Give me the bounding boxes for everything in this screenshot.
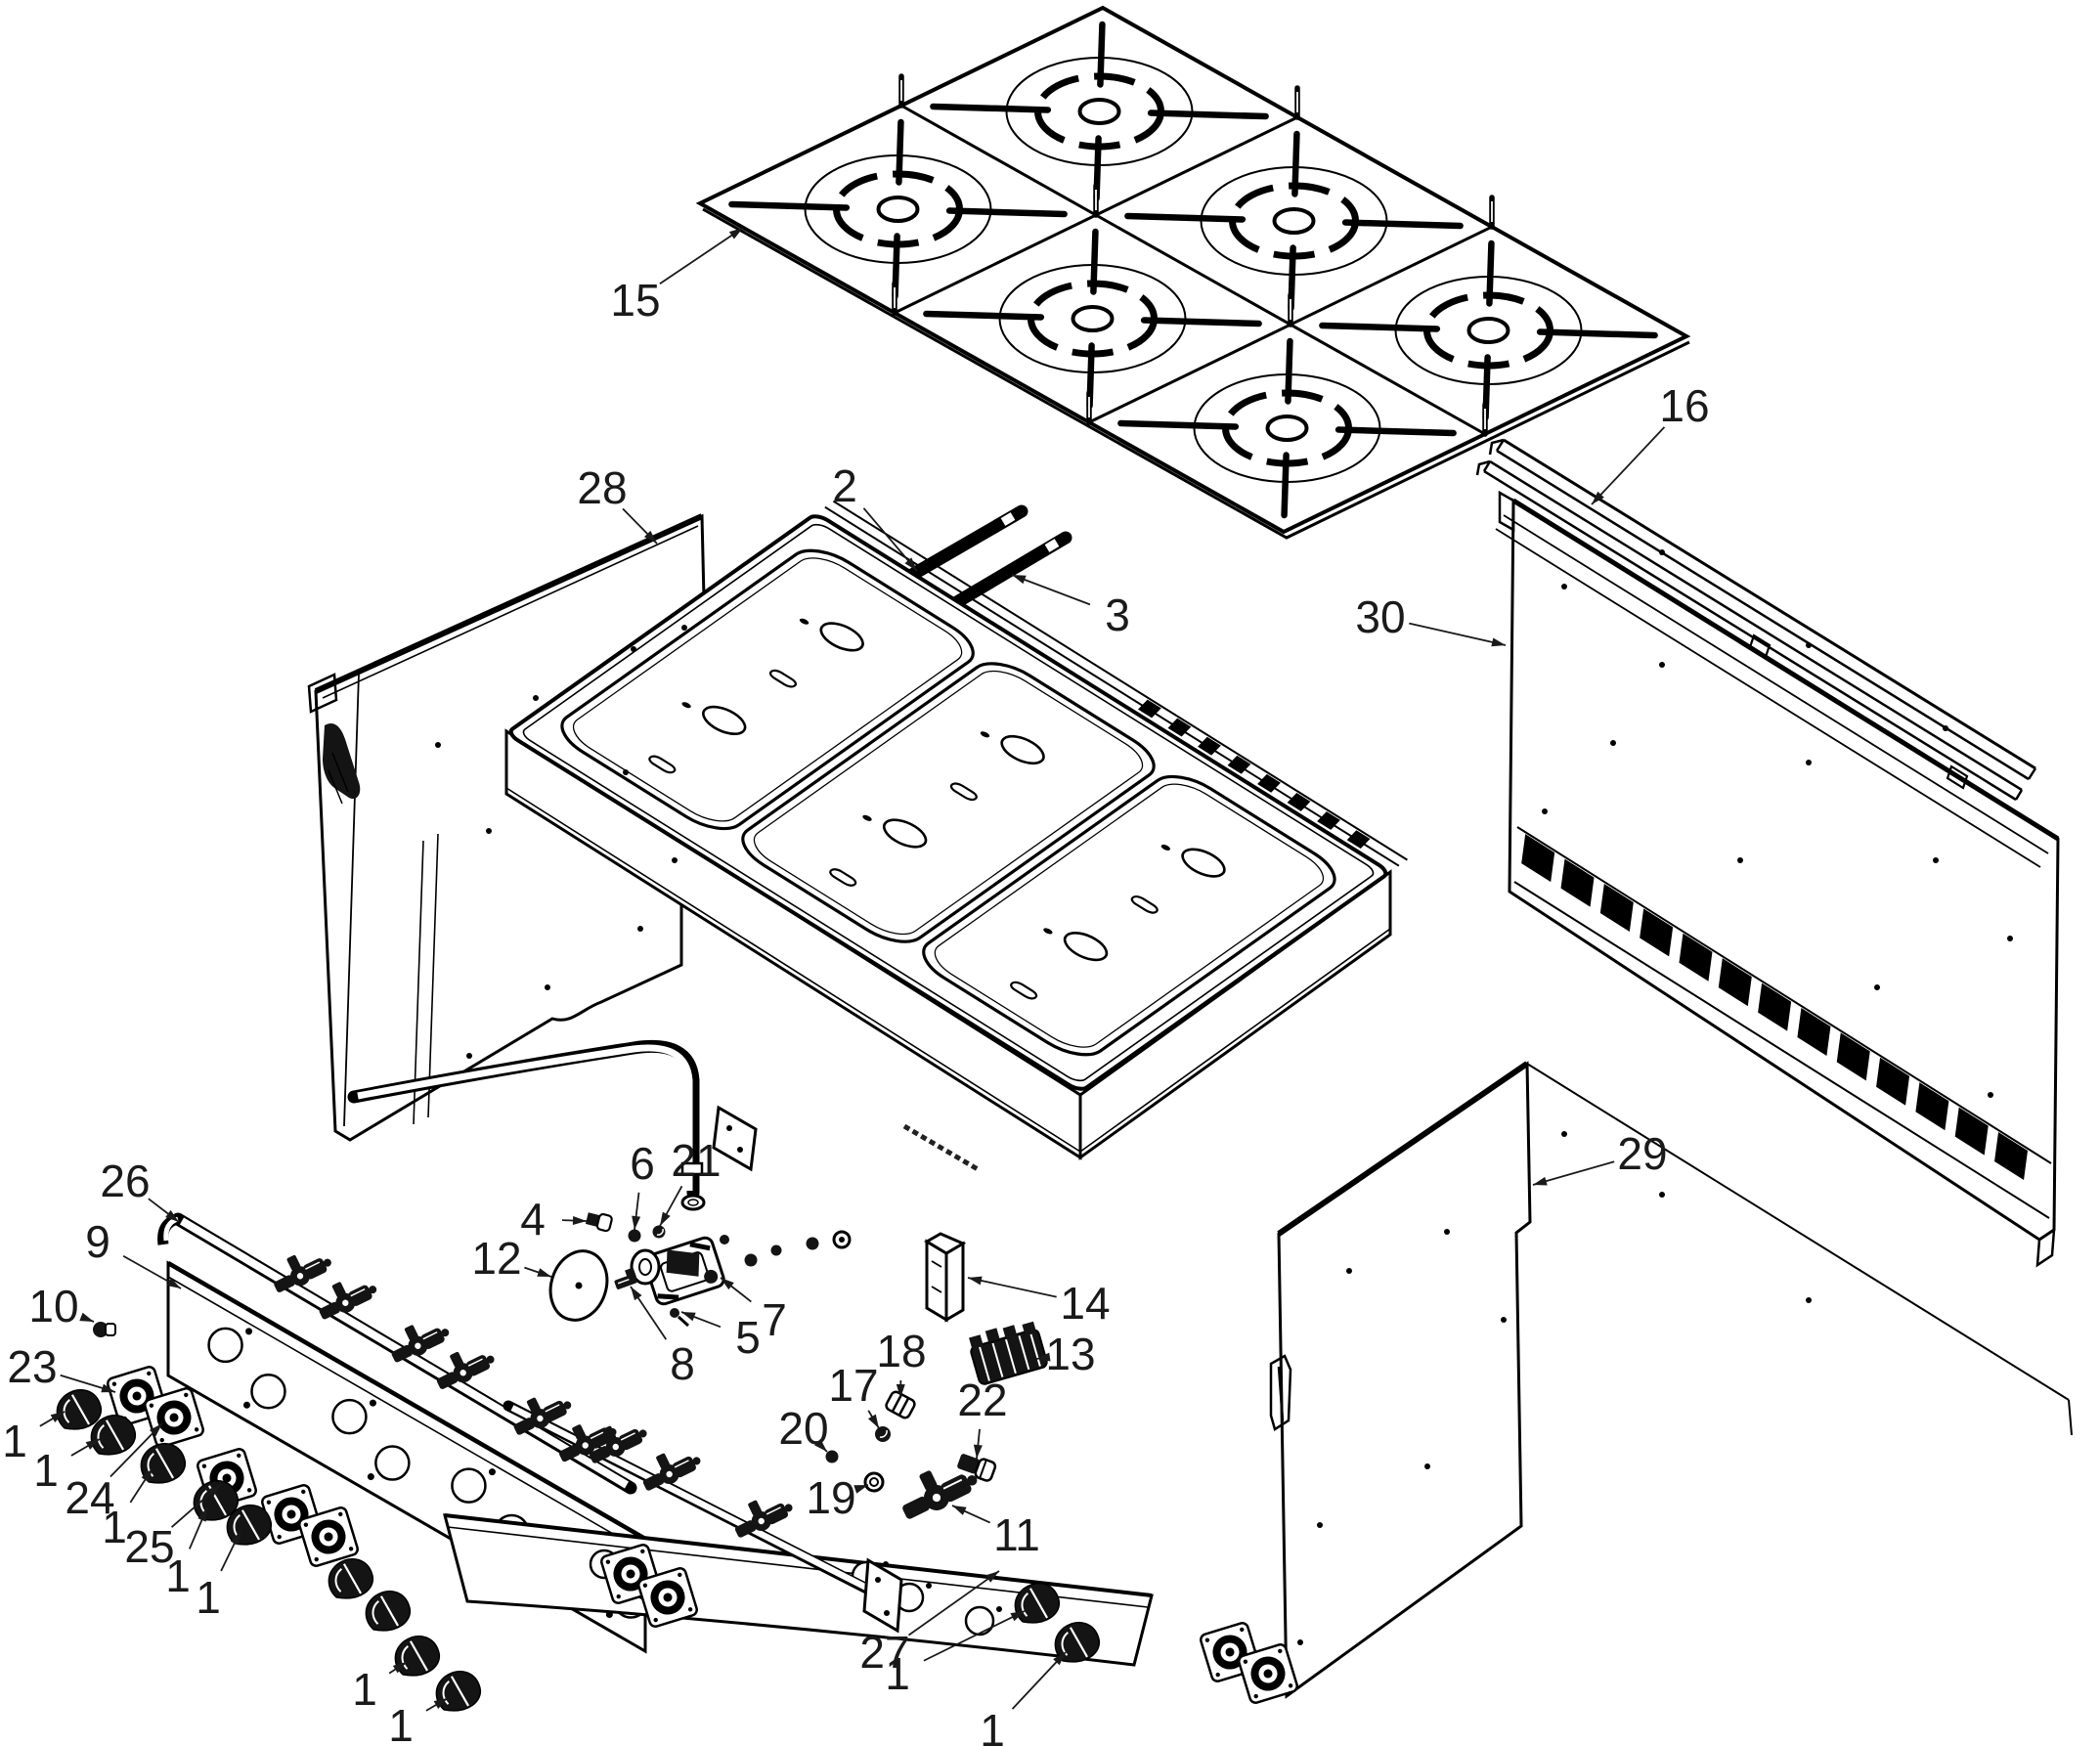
part-number-label: 1 bbox=[352, 1664, 377, 1715]
part-number-label: 3 bbox=[1105, 589, 1130, 640]
nut-part17 bbox=[875, 1426, 891, 1442]
part-number-label: 6 bbox=[630, 1138, 655, 1189]
part-number-label: 17 bbox=[828, 1360, 878, 1411]
callout-part-3: 3 bbox=[1012, 575, 1130, 640]
part-number-label: 11 bbox=[993, 1509, 1040, 1560]
callout-part-4: 4 bbox=[520, 1194, 587, 1244]
burner-grate-assembly-part15 bbox=[700, 8, 1689, 538]
callout-part-19: 19 bbox=[806, 1472, 868, 1523]
nut-part6 bbox=[629, 1230, 641, 1243]
ignition-disc-part12 bbox=[542, 1244, 616, 1328]
part-number-label: 8 bbox=[670, 1338, 695, 1389]
control-knob bbox=[361, 1586, 415, 1636]
part-number-label: 1 bbox=[2, 1416, 27, 1466]
part-number-label: 1 bbox=[980, 1705, 1005, 1746]
callout-part-1: 1 bbox=[980, 1652, 1066, 1746]
part-number-label: 22 bbox=[957, 1375, 1007, 1425]
part-number-label: 10 bbox=[28, 1281, 78, 1331]
stub-part10 bbox=[93, 1322, 115, 1337]
part-number-label: 14 bbox=[1060, 1278, 1110, 1329]
part-number-label: 21 bbox=[671, 1135, 721, 1186]
callout-part-21: 21 bbox=[660, 1135, 722, 1226]
part-number-label: 7 bbox=[762, 1294, 787, 1345]
part-number-label: 16 bbox=[1659, 380, 1709, 431]
part-number-label: 2 bbox=[832, 460, 857, 511]
screw-part5 bbox=[670, 1308, 688, 1326]
diagram-stage: 1516282330269102324251111111114621125781… bbox=[0, 0, 2100, 1746]
part-number-label: 18 bbox=[876, 1326, 926, 1376]
callout-part-16: 16 bbox=[1592, 380, 1710, 504]
part-number-label: 20 bbox=[778, 1403, 828, 1454]
callout-part-30: 30 bbox=[1355, 591, 1506, 646]
callout-part-6: 6 bbox=[630, 1138, 655, 1230]
callout-part-11: 11 bbox=[952, 1506, 1040, 1560]
callout-part-17: 17 bbox=[828, 1360, 879, 1428]
callout-part-1: 1 bbox=[388, 1698, 448, 1746]
part-number-label: 28 bbox=[577, 462, 627, 513]
pressure-regulator-part7 bbox=[542, 1210, 850, 1328]
part-number-label: 29 bbox=[1617, 1128, 1667, 1179]
control-knob bbox=[431, 1666, 485, 1716]
callout-part-23: 23 bbox=[7, 1341, 115, 1392]
part-number-label: 9 bbox=[85, 1216, 110, 1267]
callout-part-20: 20 bbox=[778, 1403, 828, 1454]
part-number-label: 1 bbox=[165, 1550, 191, 1601]
callout-part-13: 13 bbox=[1036, 1329, 1096, 1379]
part-number-label: 1 bbox=[33, 1445, 59, 1496]
part-number-label: 15 bbox=[610, 275, 660, 326]
callout-part-28: 28 bbox=[577, 462, 657, 544]
part-number-label: 1 bbox=[196, 1572, 221, 1623]
part-number-label: 19 bbox=[806, 1472, 855, 1523]
orifice-part4 bbox=[585, 1210, 612, 1232]
callout-part-26: 26 bbox=[100, 1156, 179, 1222]
callout-part-18: 18 bbox=[876, 1326, 926, 1398]
washer-part19 bbox=[865, 1473, 883, 1491]
callout-part-10: 10 bbox=[28, 1281, 94, 1331]
callout-part-29: 29 bbox=[1533, 1128, 1668, 1185]
brand-mark bbox=[904, 1126, 978, 1169]
exploded-parts-diagram: 1516282330269102324251111111114621125781… bbox=[0, 0, 2100, 1746]
callout-part-14: 14 bbox=[968, 1277, 1111, 1329]
part-number-label: 5 bbox=[735, 1312, 761, 1363]
part-number-label: 13 bbox=[1045, 1329, 1095, 1379]
callout-part-22: 22 bbox=[957, 1375, 1007, 1459]
part-number-label: 1 bbox=[102, 1502, 127, 1552]
part-number-label: 4 bbox=[520, 1194, 546, 1244]
part-number-label: 23 bbox=[7, 1341, 57, 1392]
part-number-label: 26 bbox=[100, 1156, 150, 1206]
callout-part-15: 15 bbox=[610, 228, 743, 326]
support-bracket-part14 bbox=[927, 1234, 963, 1320]
part-number-label: 30 bbox=[1355, 591, 1405, 642]
control-knob bbox=[390, 1631, 444, 1681]
callout-part-1: 1 bbox=[196, 1531, 241, 1623]
part-number-label: 27 bbox=[859, 1627, 909, 1678]
part-number-label: 12 bbox=[471, 1233, 521, 1284]
part-number-label: 1 bbox=[388, 1700, 414, 1746]
